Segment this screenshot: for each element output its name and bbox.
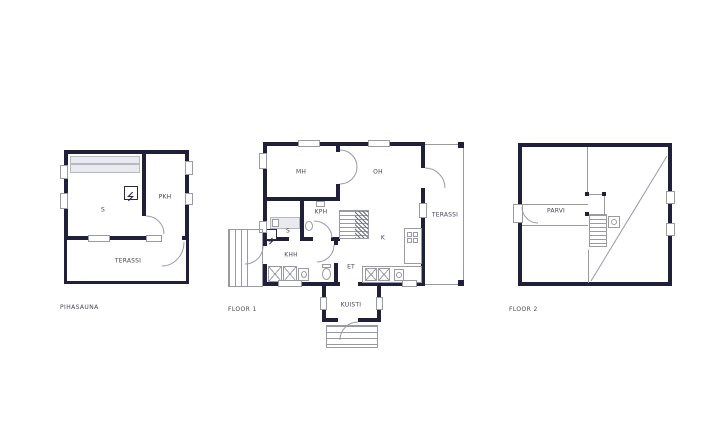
washbasin-icon	[305, 221, 313, 231]
window	[376, 297, 383, 310]
door-opening	[340, 281, 358, 288]
room-label-s: S	[286, 228, 290, 235]
window	[185, 193, 193, 205]
sauna-stove-icon	[266, 229, 277, 240]
sink-bowl	[396, 272, 402, 278]
room-label-terassi: TERASSI	[432, 212, 458, 219]
room-label-et: ET	[347, 264, 355, 271]
roof-slope-line	[520, 145, 670, 284]
room-label-pkh: PKH	[159, 194, 172, 201]
porch-wall	[322, 318, 338, 322]
wc-icon	[322, 268, 331, 280]
sauna-bench	[70, 156, 140, 164]
terrace-post	[458, 142, 464, 148]
window	[402, 280, 417, 287]
door-arc	[162, 242, 184, 266]
window	[368, 140, 390, 147]
window	[185, 161, 193, 175]
sauna-bench	[70, 164, 140, 173]
door-arc	[425, 168, 445, 188]
door-arc	[522, 207, 538, 223]
wall	[301, 237, 313, 241]
stove-burner	[407, 238, 412, 243]
door-arc	[314, 221, 332, 238]
wc-tank	[322, 264, 331, 268]
stairs-hatch	[355, 211, 368, 238]
window	[298, 140, 320, 147]
window	[60, 165, 68, 179]
window	[278, 280, 302, 287]
pihasauna-divider-wall	[142, 150, 146, 216]
sink-unit	[378, 268, 390, 281]
porch-wall	[358, 318, 381, 322]
stove-burner	[413, 232, 418, 237]
floor-plan-sheet: S PKH TERASSI PIHASAUNA	[0, 0, 720, 445]
window	[259, 153, 267, 169]
sauna-stove-icon	[124, 186, 138, 200]
plan-title-floor1: FLOOR 1	[228, 306, 257, 313]
double-door-arc	[340, 167, 357, 184]
window	[419, 203, 427, 218]
wall	[300, 201, 304, 241]
room-label-kuisti: KUISTI	[341, 302, 361, 309]
window	[88, 235, 110, 242]
room-label-sauna: S	[101, 207, 105, 214]
terrace-edge	[463, 144, 464, 285]
plan-title-pihasauna: PIHASAUNA	[60, 304, 99, 311]
entrance-steps	[326, 325, 378, 348]
room-label-khh: KHH	[284, 252, 298, 259]
room-label-oh: OH	[373, 169, 383, 176]
room-label-terassi: TERASSI	[115, 258, 141, 265]
door-arc	[317, 245, 334, 262]
wall	[334, 263, 338, 286]
window	[666, 223, 675, 236]
plan-title-floor2: FLOOR 2	[509, 306, 538, 313]
double-door-arc	[340, 150, 357, 167]
bench-pillow	[272, 219, 279, 227]
wall	[334, 241, 338, 245]
room-label-kph: KPH	[315, 209, 328, 216]
shower-icon	[316, 201, 325, 207]
window	[320, 297, 327, 310]
window	[146, 235, 162, 242]
door-arc	[146, 216, 164, 234]
terrace-post	[458, 280, 464, 286]
room-label-mh: MH	[296, 169, 306, 176]
room-label-parvi: PARVI	[547, 208, 565, 215]
utility-sink-bowl	[301, 271, 307, 278]
stove-burner	[413, 238, 418, 243]
window	[60, 193, 68, 209]
window	[666, 191, 675, 204]
room-label-k: K	[381, 235, 385, 242]
deck-steps	[229, 230, 249, 286]
sink-unit	[365, 268, 377, 281]
stove-burner	[407, 232, 412, 237]
